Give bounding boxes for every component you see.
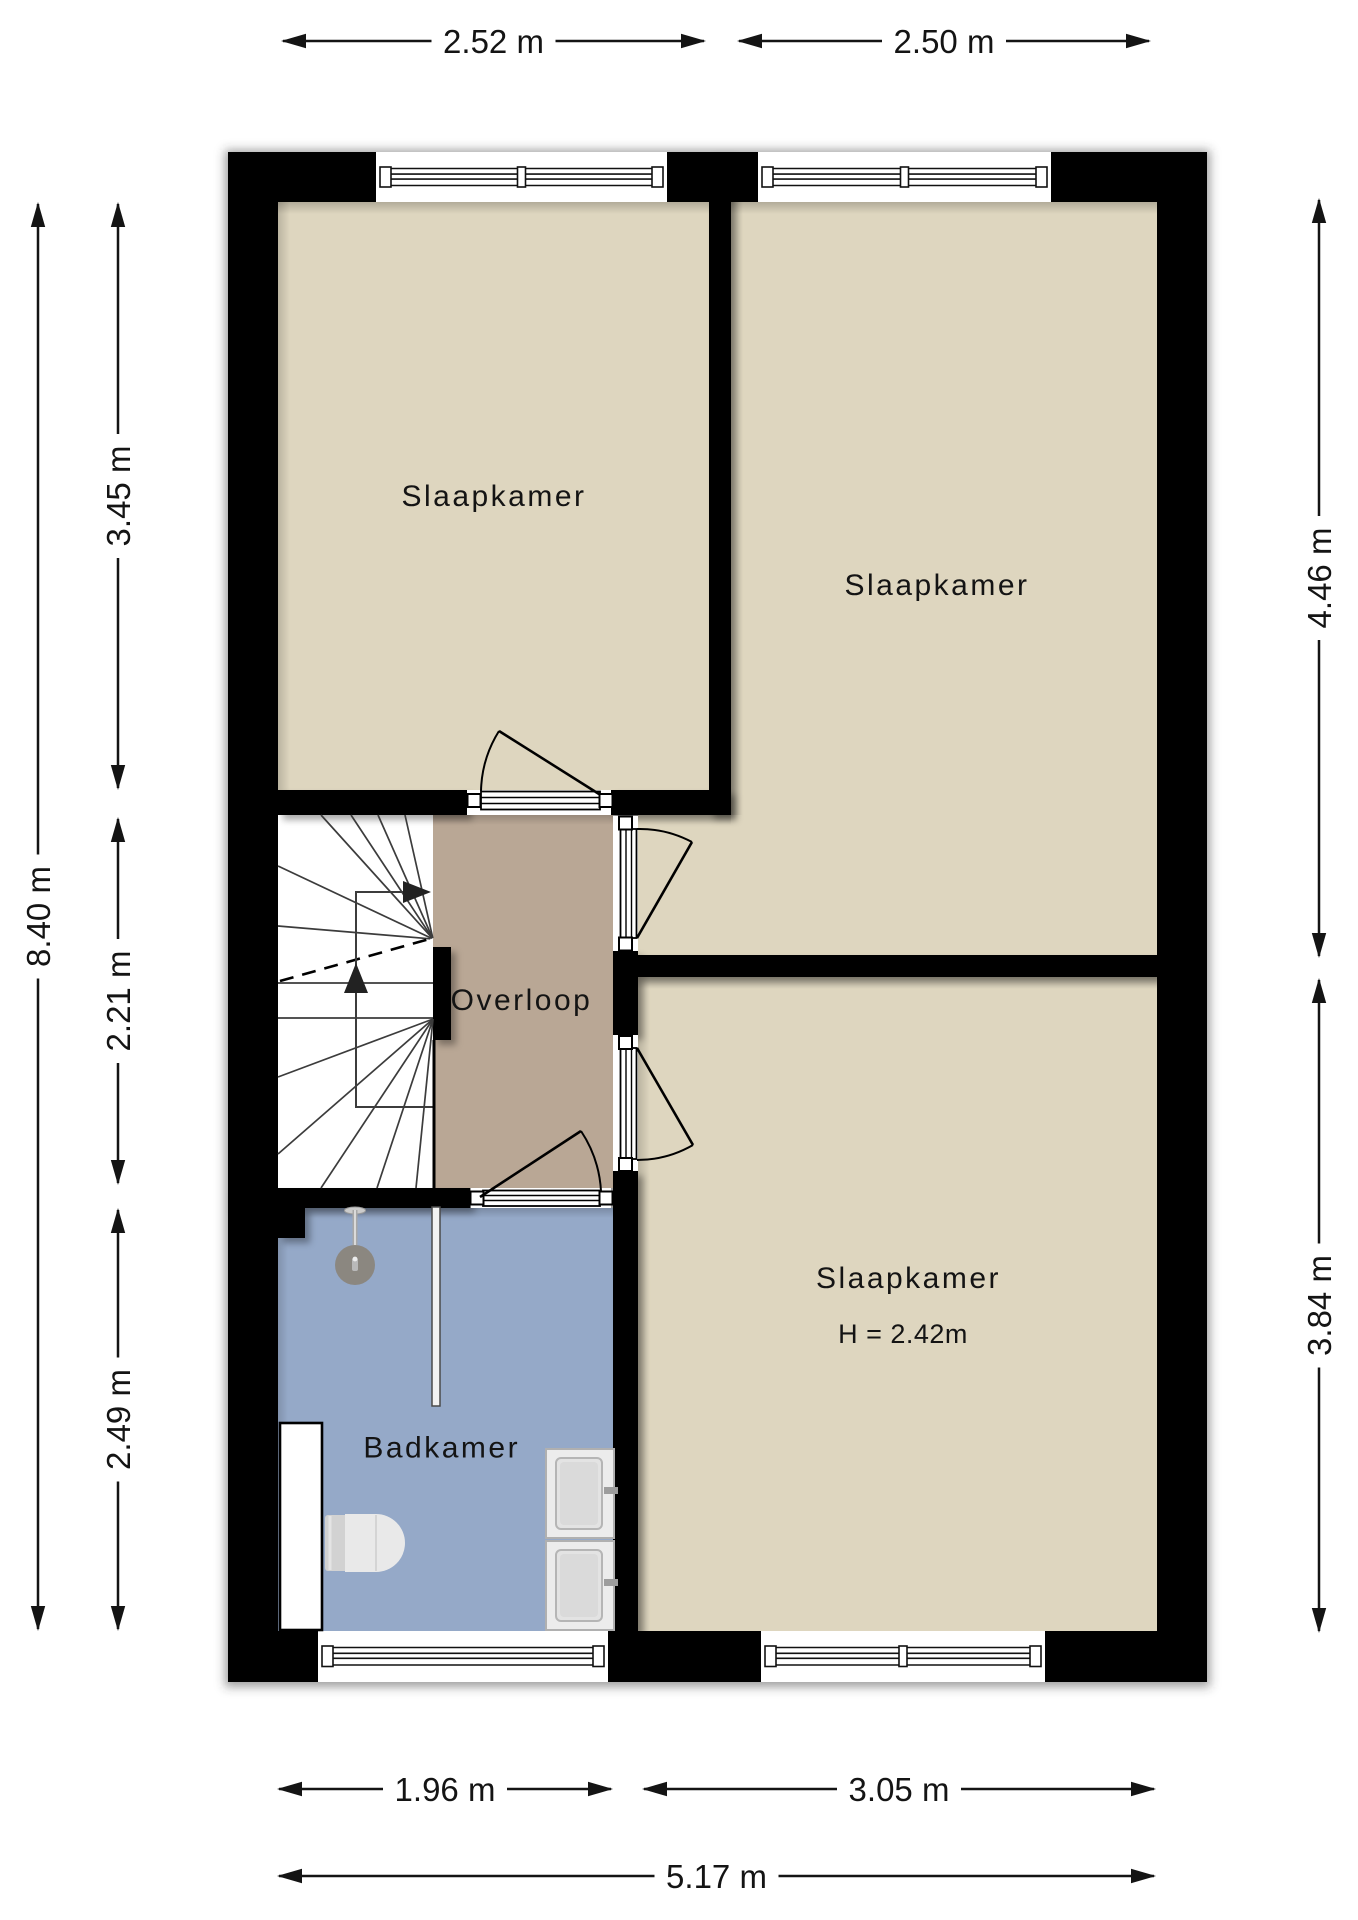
svg-text:H = 2.42m: H = 2.42m <box>838 1319 968 1349</box>
svg-text:2.21 m: 2.21 m <box>100 951 137 1052</box>
svg-text:8.40 m: 8.40 m <box>20 866 57 967</box>
svg-text:Slaapkamer: Slaapkamer <box>844 569 1029 602</box>
svg-text:3.84 m: 3.84 m <box>1301 1255 1338 1356</box>
svg-text:2.52 m: 2.52 m <box>443 23 544 60</box>
svg-text:Badkamer: Badkamer <box>363 1432 520 1465</box>
svg-text:Slaapkamer: Slaapkamer <box>816 1262 1001 1295</box>
svg-text:3.45 m: 3.45 m <box>100 446 137 547</box>
svg-text:4.46 m: 4.46 m <box>1301 528 1338 629</box>
svg-text:3.05 m: 3.05 m <box>849 1771 950 1808</box>
svg-text:5.17 m: 5.17 m <box>666 1858 767 1895</box>
svg-text:2.50 m: 2.50 m <box>894 23 995 60</box>
svg-text:Slaapkamer: Slaapkamer <box>401 480 586 513</box>
svg-text:2.49 m: 2.49 m <box>100 1369 137 1470</box>
svg-text:1.96 m: 1.96 m <box>395 1771 496 1808</box>
svg-text:Overloop: Overloop <box>451 984 593 1017</box>
